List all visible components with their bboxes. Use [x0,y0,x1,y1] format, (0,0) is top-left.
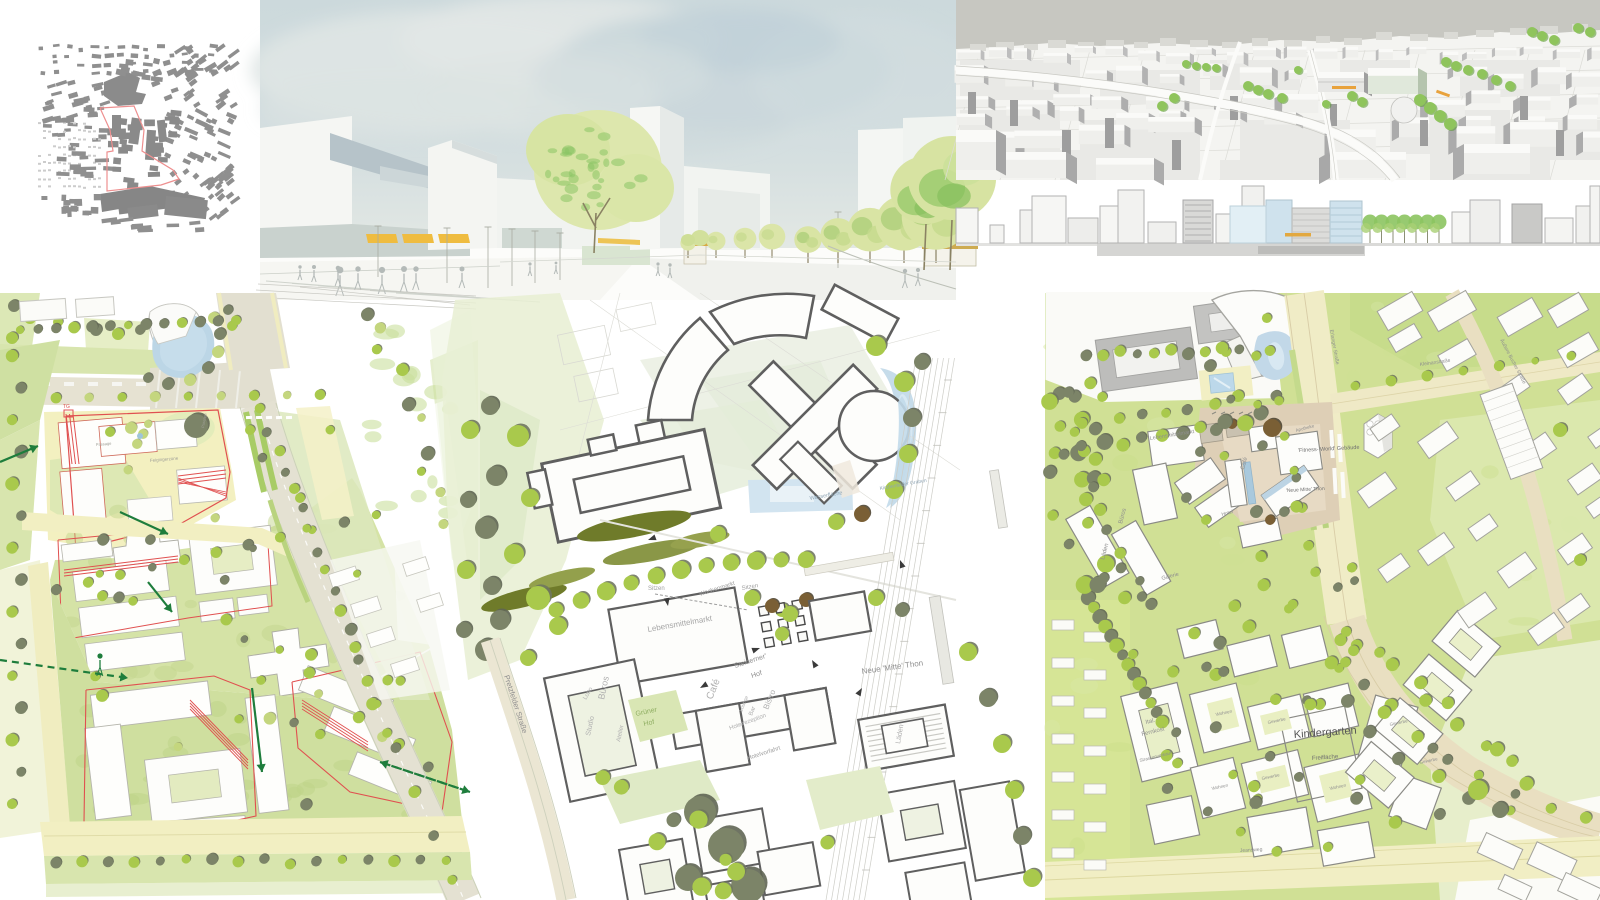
svg-text:Jeansweg: Jeansweg [1240,847,1263,854]
svg-text:TG: TG [63,404,70,410]
svg-text:Sitzen: Sitzen [648,586,665,592]
